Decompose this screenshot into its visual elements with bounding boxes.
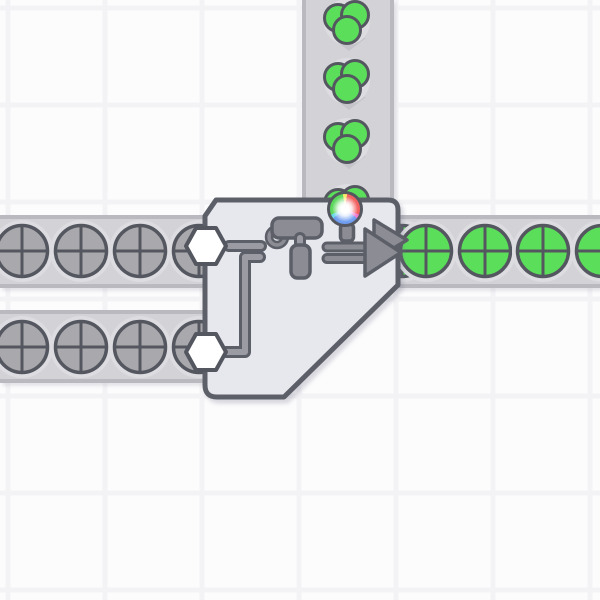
roller-handle	[291, 245, 310, 278]
belt-chevron-down-icon	[332, 97, 366, 110]
belt-chevron-down-icon	[332, 156, 366, 169]
game-viewport[interactable]	[0, 0, 600, 600]
color-wheel-icon	[327, 191, 363, 227]
painter-building[interactable]	[180, 183, 420, 413]
belt-chevron-down-icon	[332, 38, 366, 51]
input-hexagon-bottom	[186, 334, 226, 370]
input-hexagon-top	[186, 228, 226, 264]
conveyor-belt-right-output[interactable]	[394, 215, 600, 288]
